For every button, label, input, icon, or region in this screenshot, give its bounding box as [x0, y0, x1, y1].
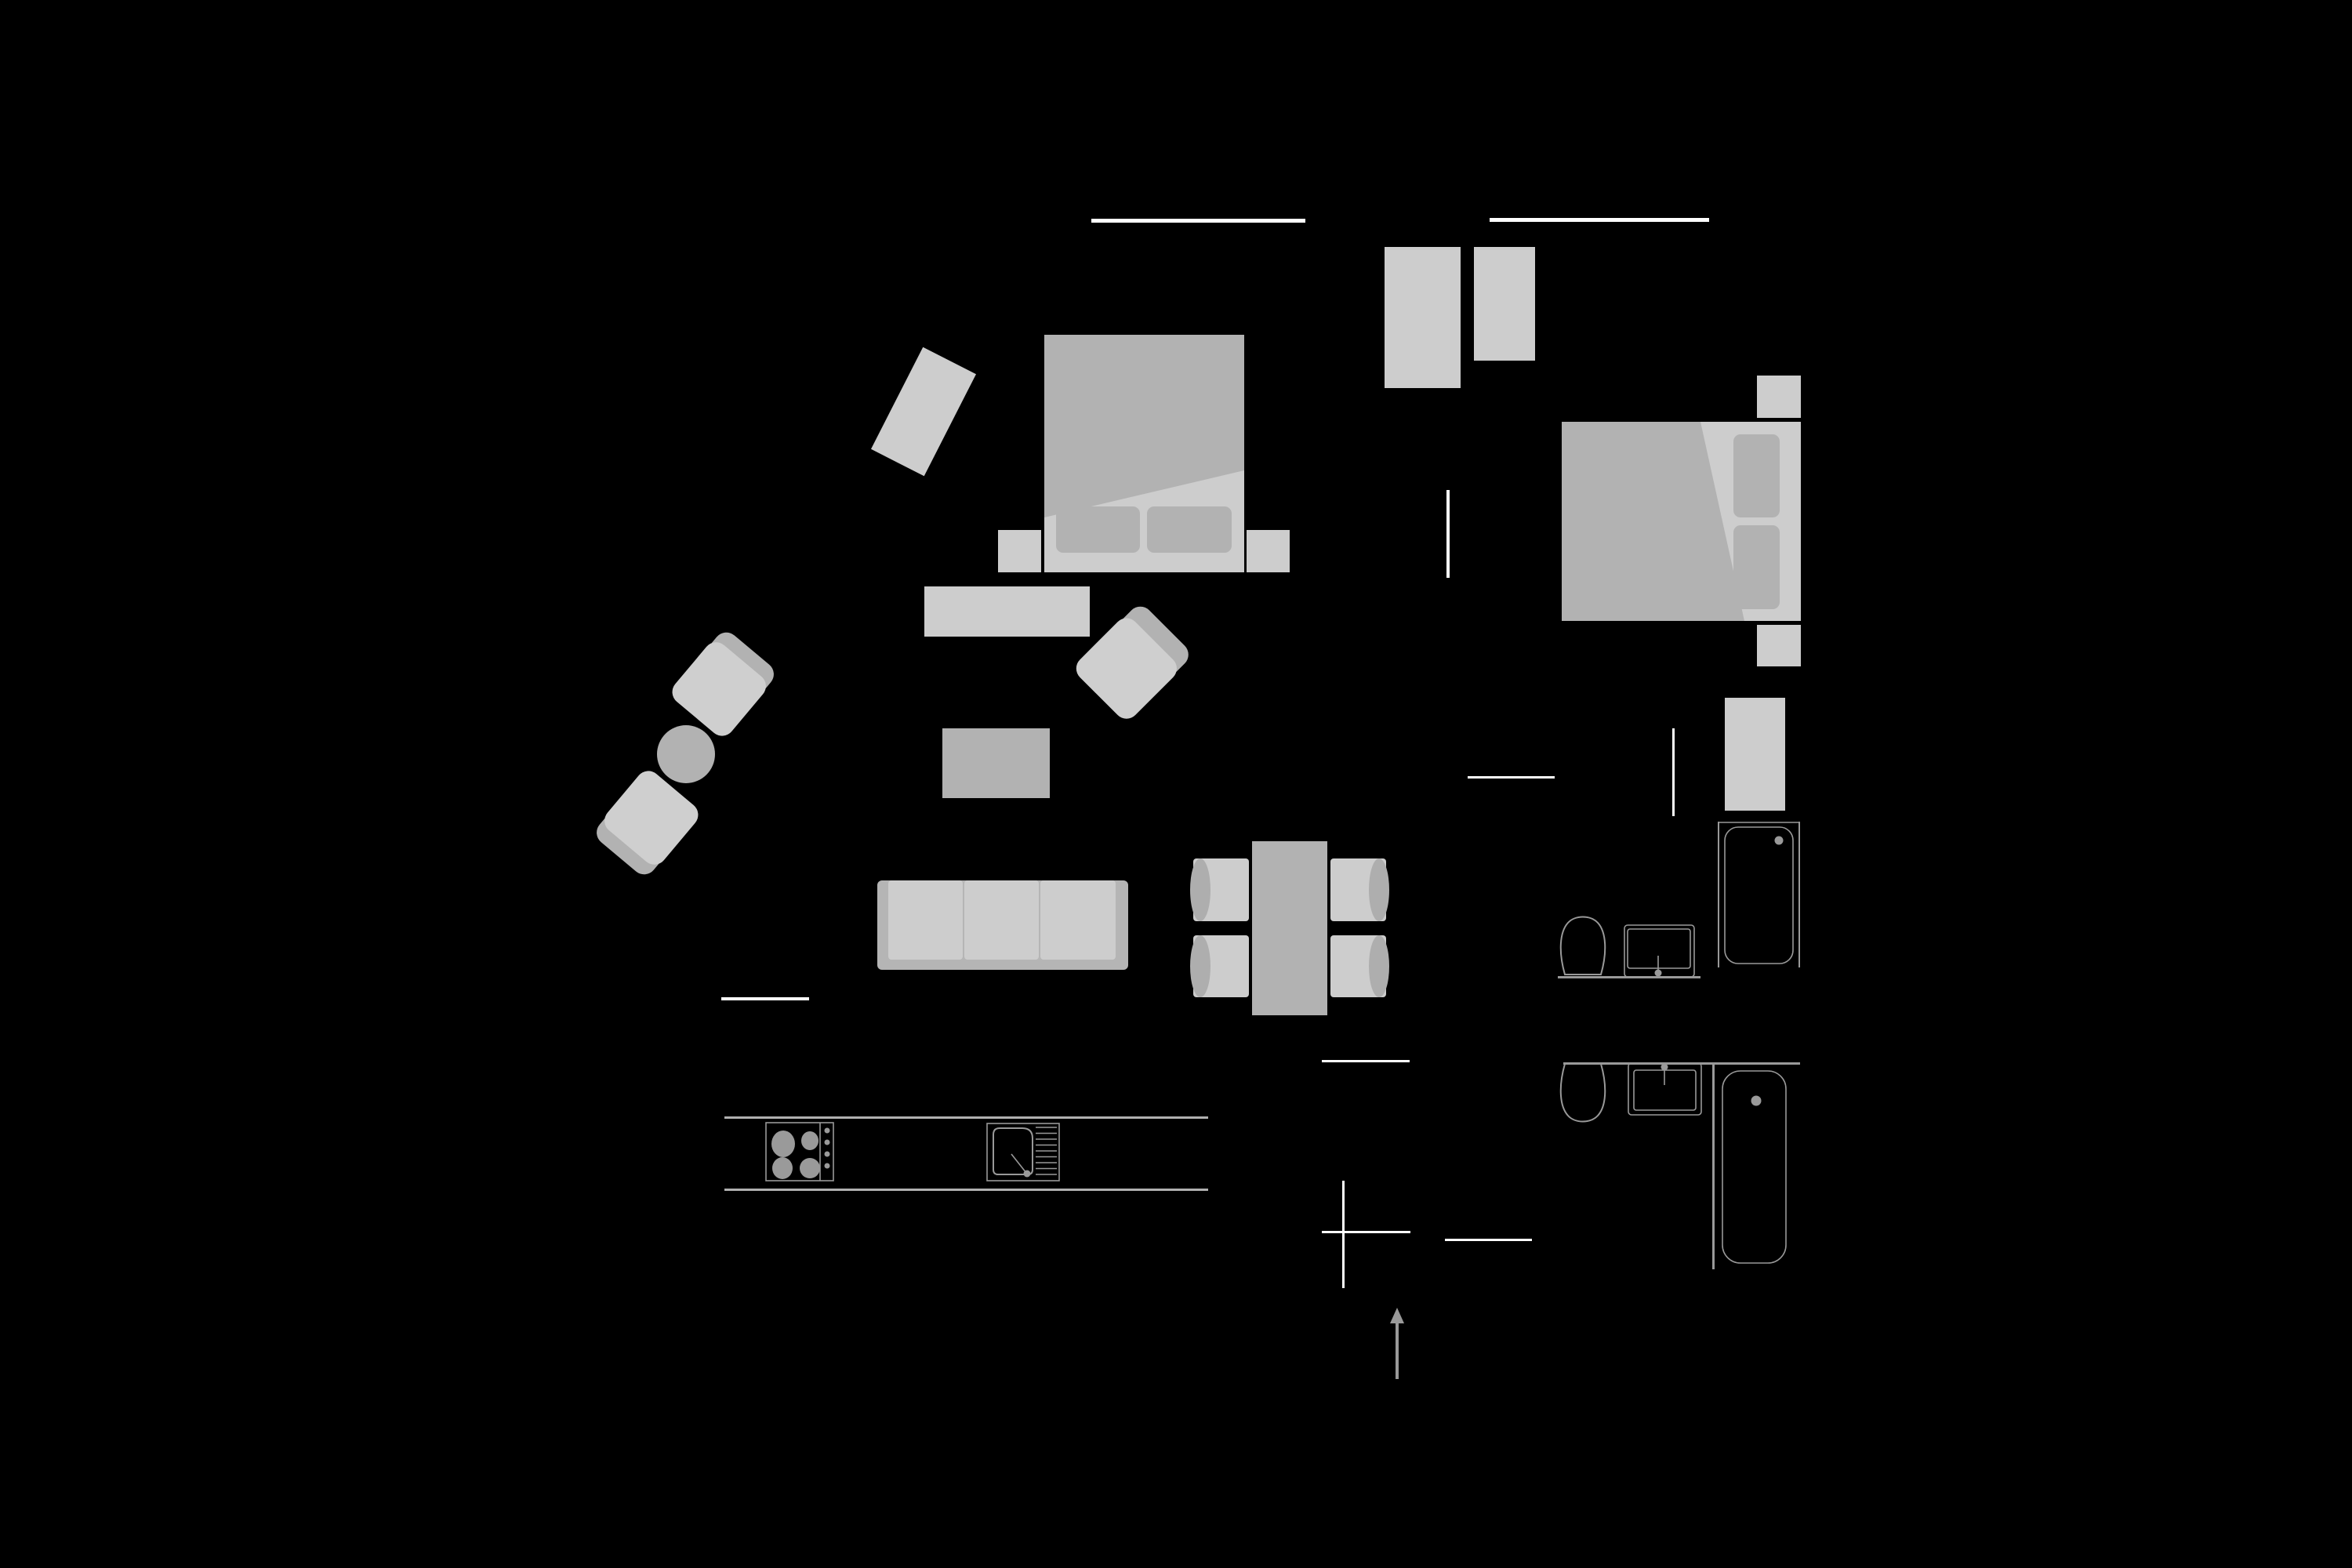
toilet-icon-bottom: [1555, 1059, 1611, 1127]
closet-panel-right: [1474, 247, 1535, 361]
washbasin-icon-top: [1624, 924, 1696, 979]
nightstand-second-top: [1757, 376, 1801, 418]
sofa-cushion-2: [964, 880, 1039, 960]
kitchen-sink-icon: [986, 1123, 1062, 1182]
bed-second-pillow-bottom: [1733, 525, 1780, 609]
survey-cross-vertical: [1342, 1181, 1345, 1288]
survey-cross-horizontal: [1322, 1231, 1410, 1233]
bed-second-pillow-top: [1733, 434, 1780, 517]
sofa-cushion-1: [888, 880, 963, 960]
sofa-cushion-3: [1040, 880, 1116, 960]
wall-line-bath2-entry: [1445, 1239, 1532, 1241]
bath2-wall-line-vertical: [1712, 1064, 1715, 1269]
armchair-top: [667, 626, 780, 741]
bed-main: [1044, 335, 1244, 572]
bed-main-pillow-right: [1147, 506, 1232, 553]
dining-chair-bottom-right: [1330, 935, 1386, 997]
round-side-table: [657, 725, 715, 783]
shower-icon: [1716, 818, 1802, 971]
bed-second: [1562, 422, 1801, 621]
dining-chair-cap: [1190, 935, 1210, 997]
dining-chair-cap: [1369, 858, 1389, 921]
nightstand-second-bottom: [1757, 625, 1801, 666]
north-arrow-icon: [1386, 1306, 1408, 1381]
wall-line-vertical-center: [1446, 490, 1450, 578]
wall-line-living: [721, 997, 809, 1000]
dining-chair-top-right: [1330, 858, 1386, 921]
washbasin-icon-bottom: [1628, 1062, 1704, 1118]
dresser: [924, 586, 1090, 637]
nightstand-main-left: [998, 530, 1041, 572]
floor-plan-canvas: [0, 0, 2352, 1568]
dining-table: [1252, 841, 1327, 1015]
wardrobe: [1725, 698, 1785, 811]
dining-chair-cap: [1369, 935, 1389, 997]
window-line-right: [1490, 218, 1709, 222]
kitchen-counter-line-top: [724, 1116, 1208, 1119]
sofa: [877, 880, 1128, 970]
wall-line-bath2-top-left: [1322, 1060, 1410, 1062]
kitchen-counter-line-bottom: [724, 1189, 1208, 1191]
desk: [942, 728, 1050, 798]
dining-chair-bottom-left: [1193, 935, 1249, 997]
toilet-icon-top: [1555, 912, 1611, 979]
dining-chair-top-left: [1193, 858, 1249, 921]
window-line-left: [1091, 219, 1305, 223]
cooktop-icon: [765, 1122, 834, 1181]
dining-chair-cap: [1190, 858, 1210, 921]
rug: [871, 347, 976, 477]
closet-panel-left: [1385, 247, 1461, 388]
nightstand-main-right: [1247, 530, 1290, 572]
bathtub-icon: [1720, 1068, 1792, 1269]
bed-main-pillow-left: [1056, 506, 1140, 553]
wall-line-hall-vertical: [1672, 728, 1675, 816]
wall-line-hall-horizontal: [1468, 776, 1555, 779]
